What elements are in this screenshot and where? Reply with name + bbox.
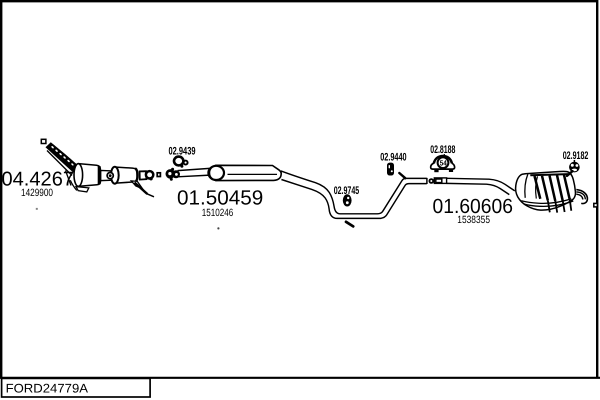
svg-text:FORD24779A: FORD24779A (6, 381, 89, 395)
svg-text:02.8188: 02.8188 (430, 144, 455, 156)
svg-text:1538355: 1538355 (457, 214, 490, 226)
svg-text:1510246: 1510246 (202, 207, 234, 219)
svg-text:02.9440: 02.9440 (380, 151, 406, 163)
svg-text:02.9439: 02.9439 (169, 146, 196, 158)
svg-text:1429900: 1429900 (21, 187, 53, 199)
svg-text:02.9182: 02.9182 (563, 150, 589, 162)
svg-text:54: 54 (440, 158, 448, 167)
